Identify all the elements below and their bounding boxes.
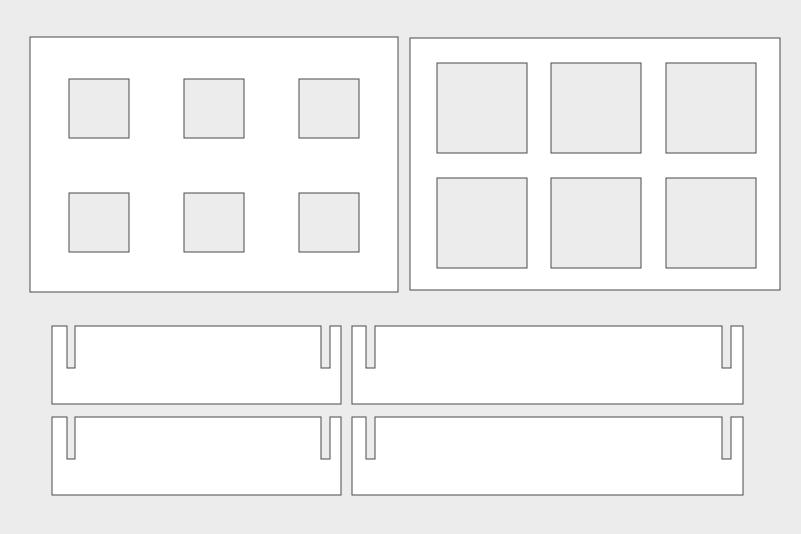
square-hole	[551, 178, 641, 268]
slotted-bar-bottom-right	[352, 417, 743, 495]
slotted-bar-top-left	[52, 326, 341, 404]
square-hole	[666, 178, 756, 268]
square-hole	[184, 193, 244, 252]
parts-canvas	[0, 0, 801, 534]
square-hole	[437, 178, 527, 268]
square-hole	[299, 79, 359, 138]
square-hole	[69, 79, 129, 138]
square-hole	[299, 193, 359, 252]
slotted-bar-bottom-left	[52, 417, 341, 495]
slotted-bar-top-right	[352, 326, 743, 404]
hole-panel-left	[30, 37, 398, 292]
square-hole	[69, 193, 129, 252]
laser-cut-parts-layout	[0, 0, 801, 534]
square-hole	[666, 63, 756, 153]
square-hole	[551, 63, 641, 153]
square-hole	[437, 63, 527, 153]
square-hole	[184, 79, 244, 138]
